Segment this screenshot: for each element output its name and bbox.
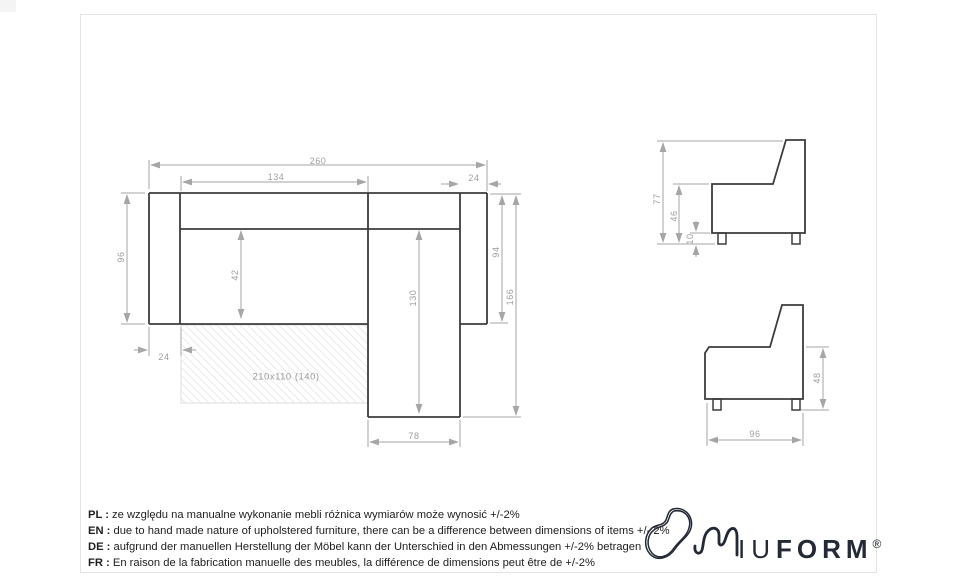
- note-en-text: due to hand made nature of upholstered f…: [113, 525, 669, 537]
- dim-label-seat-depth: 42: [230, 269, 240, 280]
- drawing-sheet: [80, 14, 877, 573]
- note-en-prefix: EN :: [88, 525, 110, 537]
- logo-text-thin: IU: [738, 534, 776, 564]
- dim-label-seat-height: 46: [669, 210, 679, 221]
- sleeping-area-label: 210x110 (140): [252, 372, 319, 383]
- note-pl-prefix: PL :: [88, 509, 109, 521]
- note-de-text: aufgrund der manuellen Herstellung der M…: [113, 541, 641, 553]
- dim-label-right-arm-width: 24: [468, 173, 479, 183]
- dim-label-overall-width: 260: [310, 156, 327, 166]
- screen-corner-artifact: [0, 0, 16, 12]
- dim-label-right-depth: 94: [491, 246, 501, 257]
- tolerance-notes: PL : ze względu na manualne wykonanie me…: [88, 508, 648, 572]
- note-de-prefix: DE :: [88, 541, 110, 553]
- logo-wordmark: IUFORM®: [738, 531, 881, 562]
- dim-label-chaise-width: 78: [408, 431, 419, 441]
- note-en: EN : due to hand made nature of upholste…: [88, 524, 648, 540]
- dim-label-overall-height: 77: [652, 193, 662, 204]
- bean-logo-icon: [644, 505, 696, 565]
- note-fr-prefix: FR :: [88, 557, 110, 569]
- logo-m-glyph: [693, 524, 739, 558]
- dim-label-armrest-height: 48: [812, 372, 822, 383]
- dim-label-chaise-length: 130: [408, 290, 418, 307]
- note-pl: PL : ze względu na manualne wykonanie me…: [88, 508, 648, 524]
- logo-text-bold: FORM: [776, 534, 873, 564]
- dim-label-side-depth: 96: [749, 429, 760, 439]
- miuform-logo: IUFORM®: [640, 502, 880, 568]
- note-fr-text: En raison de la fabrication manuelle des…: [113, 557, 595, 569]
- registered-trademark-symbol: ®: [873, 537, 882, 551]
- note-de: DE : aufgrund der manuellen Herstellung …: [88, 540, 648, 556]
- dim-label-overall-depth: 166: [505, 289, 515, 306]
- note-pl-text: ze względu na manualne wykonanie mebli r…: [112, 509, 520, 521]
- dim-label-leg-height: 10: [685, 233, 695, 244]
- dim-label-left-depth: 96: [116, 251, 126, 262]
- dim-label-inner-width: 134: [268, 172, 285, 182]
- note-fr: FR : En raison de la fabrication manuell…: [88, 556, 648, 572]
- dim-label-left-arm-width: 24: [158, 352, 169, 362]
